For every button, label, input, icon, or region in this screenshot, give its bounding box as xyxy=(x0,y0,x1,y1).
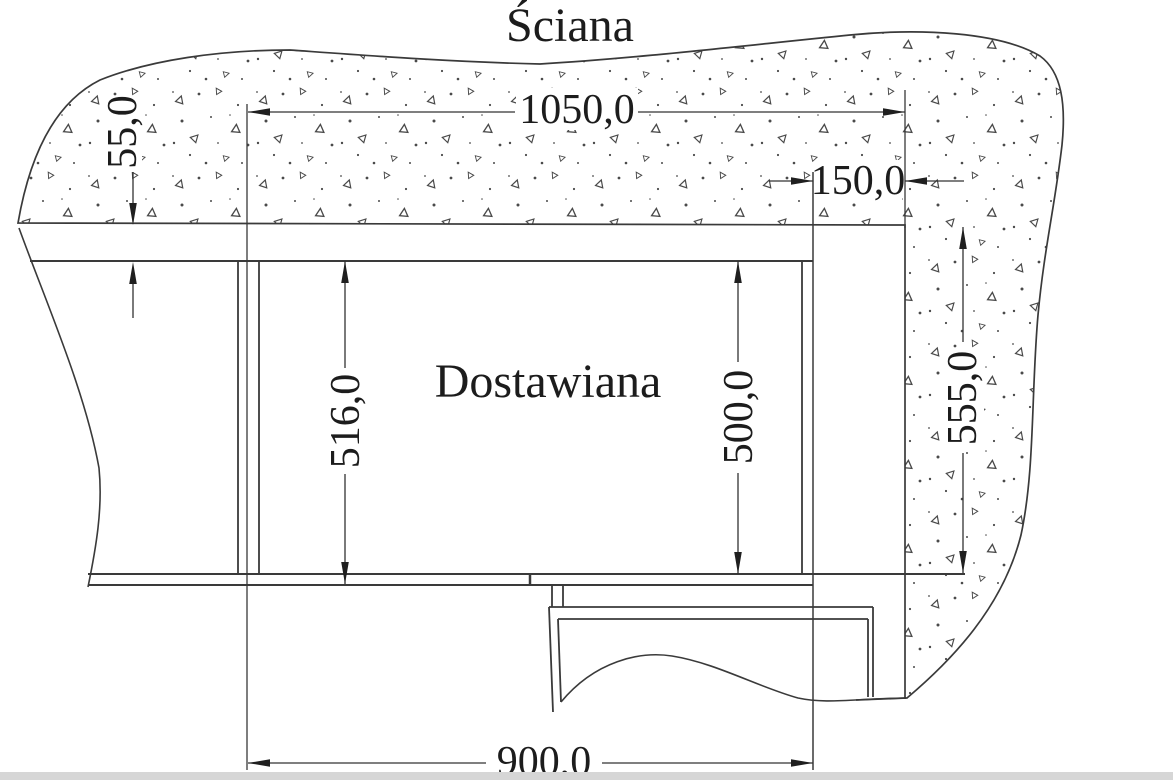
arrowhead-up-icon xyxy=(129,262,137,284)
dimension-inner-height-left: 516,0 xyxy=(323,261,369,584)
arrowhead-right-icon xyxy=(791,759,813,767)
arrowhead-left-icon xyxy=(248,759,270,767)
added-cabinet-label: Dostawiana xyxy=(435,355,662,408)
technical-drawing-page: 1050,0 150,0 55,0 516,0 500,0 xyxy=(0,0,1173,780)
wall-title-label: Ściana xyxy=(506,0,634,52)
lower-cabinet-left-inner-edge xyxy=(558,619,561,702)
lower-cabinet-break-wave xyxy=(561,655,906,702)
dimension-label-55: 55,0 xyxy=(100,95,146,169)
arrowhead-down-icon xyxy=(734,552,742,574)
arrowhead-up-icon xyxy=(341,261,349,283)
dimension-label-150: 150,0 xyxy=(811,158,906,204)
dimension-label-1050: 1050,0 xyxy=(519,87,635,133)
left-break-curve xyxy=(19,228,100,587)
lower-cabinet-left-outer-edge xyxy=(549,607,553,712)
arrowhead-up-icon xyxy=(734,261,742,283)
bottom-edge-strip xyxy=(0,772,1173,780)
dimension-label-516: 516,0 xyxy=(323,374,369,469)
dimension-inner-height-right: 500,0 xyxy=(716,261,762,574)
dimension-label-500: 500,0 xyxy=(716,370,762,465)
cad-drawing-canvas: 1050,0 150,0 55,0 516,0 500,0 xyxy=(0,0,1173,780)
dimension-label-555: 555,0 xyxy=(940,351,986,446)
